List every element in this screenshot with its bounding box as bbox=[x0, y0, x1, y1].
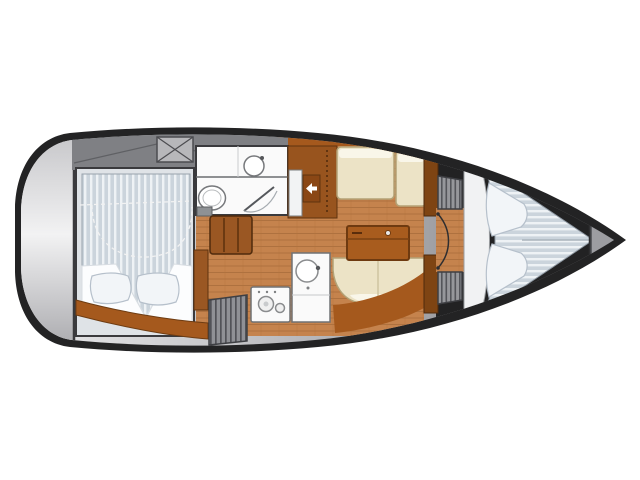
stove-burner-small bbox=[276, 304, 285, 313]
pillow bbox=[90, 273, 131, 304]
door-hinge bbox=[436, 266, 440, 270]
corridor-trim bbox=[194, 250, 208, 310]
swim-platform bbox=[15, 120, 74, 360]
v-berth-floor-rim bbox=[464, 170, 490, 310]
companionway-steps bbox=[210, 216, 252, 254]
slatted-hatch bbox=[209, 295, 247, 345]
hanging-locker-bottom bbox=[438, 272, 462, 304]
fridge-panel bbox=[289, 170, 302, 216]
settee-cushion-highlight bbox=[339, 149, 392, 158]
sink-faucet bbox=[260, 156, 264, 160]
pillow bbox=[136, 273, 179, 305]
boat-floorplan-svg bbox=[0, 0, 640, 480]
cockpit-locker bbox=[157, 137, 193, 162]
galley-faucet bbox=[316, 266, 320, 270]
nav-cabinet bbox=[288, 146, 337, 218]
aft-cabin bbox=[76, 168, 208, 339]
stove-knob bbox=[258, 291, 260, 293]
aft-berth-mattress bbox=[82, 174, 190, 266]
floorplan-canvas bbox=[0, 0, 640, 480]
door-hinge bbox=[436, 212, 440, 216]
toilet-tank bbox=[197, 207, 212, 216]
bulkhead-wall-bottom bbox=[424, 255, 438, 313]
stove-knob bbox=[274, 291, 276, 293]
table-knob bbox=[386, 231, 391, 236]
head-compartment bbox=[196, 146, 288, 216]
galley-sink bbox=[296, 260, 318, 282]
galley-drawer-handle bbox=[307, 287, 310, 290]
hanging-locker-top bbox=[438, 176, 462, 209]
salon-table bbox=[347, 226, 409, 260]
stove-knob bbox=[266, 291, 268, 293]
stove-burner-large-center bbox=[264, 302, 269, 307]
